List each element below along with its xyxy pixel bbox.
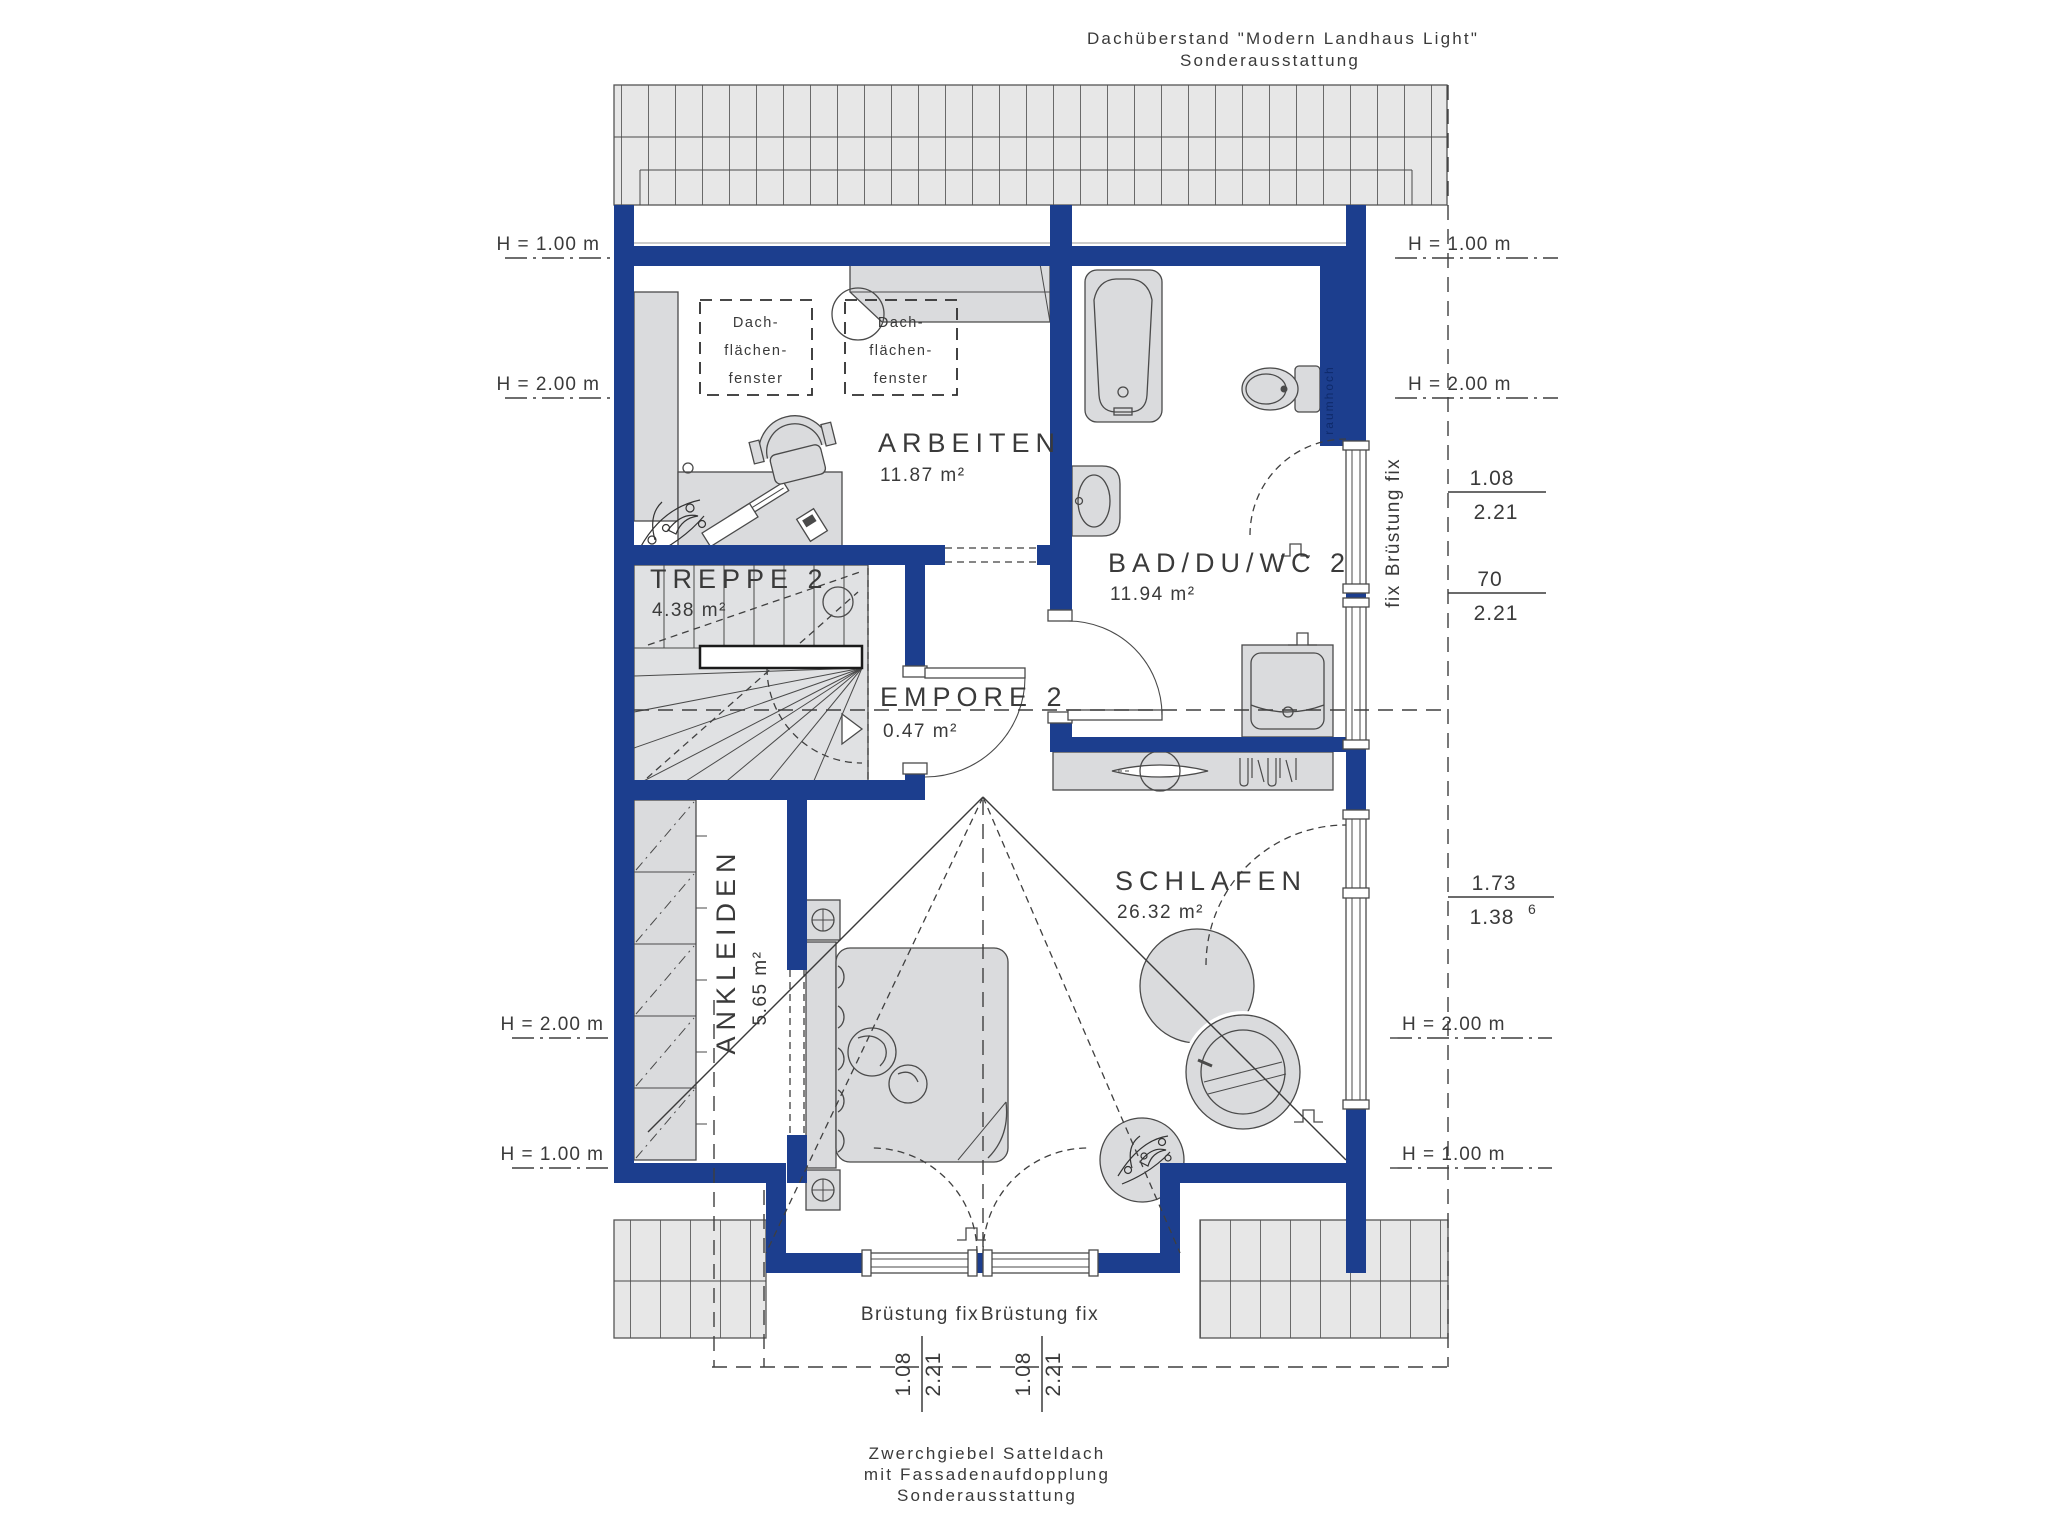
bathtub [1085,270,1162,422]
room-empore-area: 0.47 m² [883,721,958,742]
room-arbeiten-area: 11.87 m² [880,465,966,486]
skylight2-line2: flächen- [869,343,933,359]
arbeiten-passage-dashes [945,548,1037,562]
height-label-left-3: H = 2.00 m [501,1014,604,1035]
top-roof-overhang [614,85,1447,205]
room-arbeiten-name: ARBEITEN [878,428,1061,458]
room-schlafen-area: 26.32 m² [1117,902,1204,923]
room-treppe-name: TREPPE 2 [650,564,829,594]
bottom-annotation-line2: mit Fassadenaufdopplung [864,1465,1110,1484]
room-ankleiden-name: ANKLEIDEN [711,847,741,1054]
ankleiden-opening-dashes [790,970,804,1135]
dim-bottom2-num: 1.08 [1012,1352,1035,1397]
room-empore-name: EMPORE 2 [880,682,1068,712]
dim-right1-num: 1.08 [1470,467,1515,490]
window-bottom-2 [983,1250,1098,1276]
fix-right-label: fix [1383,584,1404,608]
floor-plan-page: Dachüberstand "Modern Landhaus Light" So… [0,0,2048,1536]
bruestung-fix-right-label: Brüstung fix [1383,458,1404,576]
toilet [1242,366,1320,412]
dim-bottom1-den: 2.21 [922,1352,945,1397]
staircase [634,565,868,790]
height-label-right-3: H = 2.00 m [1402,1014,1505,1035]
desk [678,463,842,548]
height-label-right-1: H = 1.00 m [1408,234,1511,255]
bottom-annotation-line1: Zwerchgiebel Satteldach [869,1444,1106,1463]
bedroom-armchair [1140,929,1304,1133]
window-bath-right-2 [1343,598,1369,749]
height-label-right-2: H = 2.00 m [1408,374,1511,395]
room-treppe-area: 4.38 m² [652,600,727,621]
height-label-right-4: H = 1.00 m [1402,1144,1505,1165]
height-label-left-4: H = 1.00 m [501,1144,604,1165]
skylight-labels: Dach- flächen- fenster Dach- flächen- fe… [724,315,933,387]
skylight1-line3: fenster [729,371,784,387]
height-label-left-2: H = 2.00 m [497,374,600,395]
shower [1242,645,1333,737]
bedroom-dresser [1053,751,1333,791]
window-bottom-1 [862,1250,977,1276]
window-bedroom-right [1343,810,1369,1109]
dim-bottom2-den: 2.21 [1042,1352,1065,1397]
bed [806,900,1008,1210]
room-bad-area: 11.94 m² [1110,584,1196,605]
skylight2-line1: Dach- [878,315,924,331]
floor-plan-drawing: Dachüberstand "Modern Landhaus Light" So… [0,0,2048,1536]
dim-right1-den: 2.21 [1474,501,1519,524]
room-schlafen-name: SCHLAFEN [1115,866,1307,896]
arbeiten-corner-cabinet [634,292,678,521]
skylight1-line1: Dach- [733,315,779,331]
bruestung-fix-bottom-1: Brüstung fix [861,1304,979,1325]
dim-right3-den: 1.38 [1470,906,1515,929]
bottom-left-roof-overhang [614,1220,766,1338]
room-ankleiden-area: 5.65 m² [750,951,771,1026]
room-bad-name: BAD/DU/WC 2 [1108,548,1351,578]
bottom-annotation-line3: Sonderausstattung [897,1486,1077,1505]
dim-right2-den: 2.21 [1474,602,1519,625]
skylight1-line2: flächen- [724,343,788,359]
dim-bottom1-num: 1.08 [892,1352,915,1397]
bathroom-sink [1072,466,1120,536]
height-label-left-1: H = 1.00 m [497,234,600,255]
wardrobe [634,800,707,1160]
roof-annotation-line2: Sonderausstattung [1180,51,1360,70]
roof-annotation-line1: Dachüberstand "Modern Landhaus Light" [1087,29,1479,48]
top-annotation: Dachüberstand "Modern Landhaus Light" So… [1087,29,1479,70]
bottom-right-roof-overhang [1200,1220,1448,1338]
raumhoch-label: raumhoch [1322,365,1336,434]
bruestung-fix-bottom-2: Brüstung fix [981,1304,1099,1325]
dim-right3-den-sup: 6 [1528,901,1536,917]
dim-right3-num: 1.73 [1472,872,1517,895]
bottom-annotation: Zwerchgiebel Satteldach mit Fassadenaufd… [864,1444,1110,1505]
skylight2-line3: fenster [874,371,929,387]
dim-right2-num: 70 [1477,568,1502,591]
